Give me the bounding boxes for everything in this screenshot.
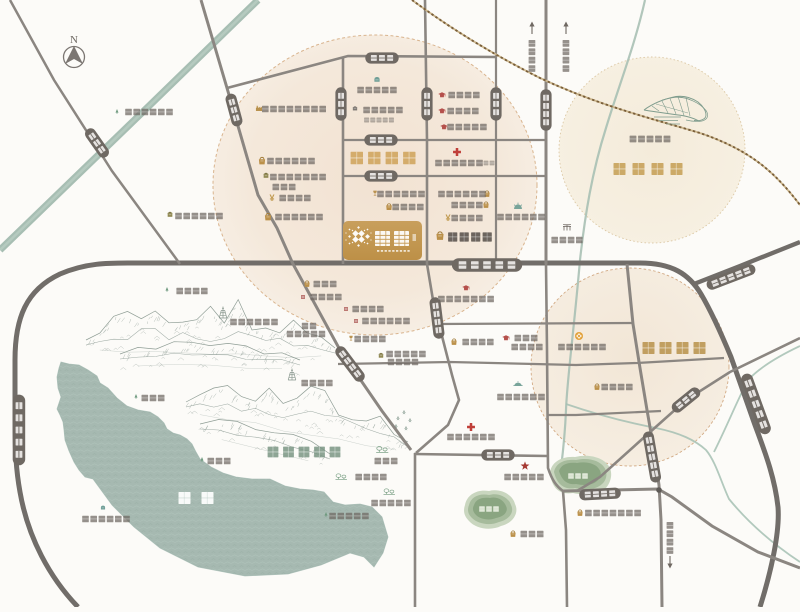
svg-text:¥: ¥ <box>445 213 450 223</box>
svg-text:N: N <box>70 34 78 46</box>
svg-text:¥: ¥ <box>269 193 274 203</box>
